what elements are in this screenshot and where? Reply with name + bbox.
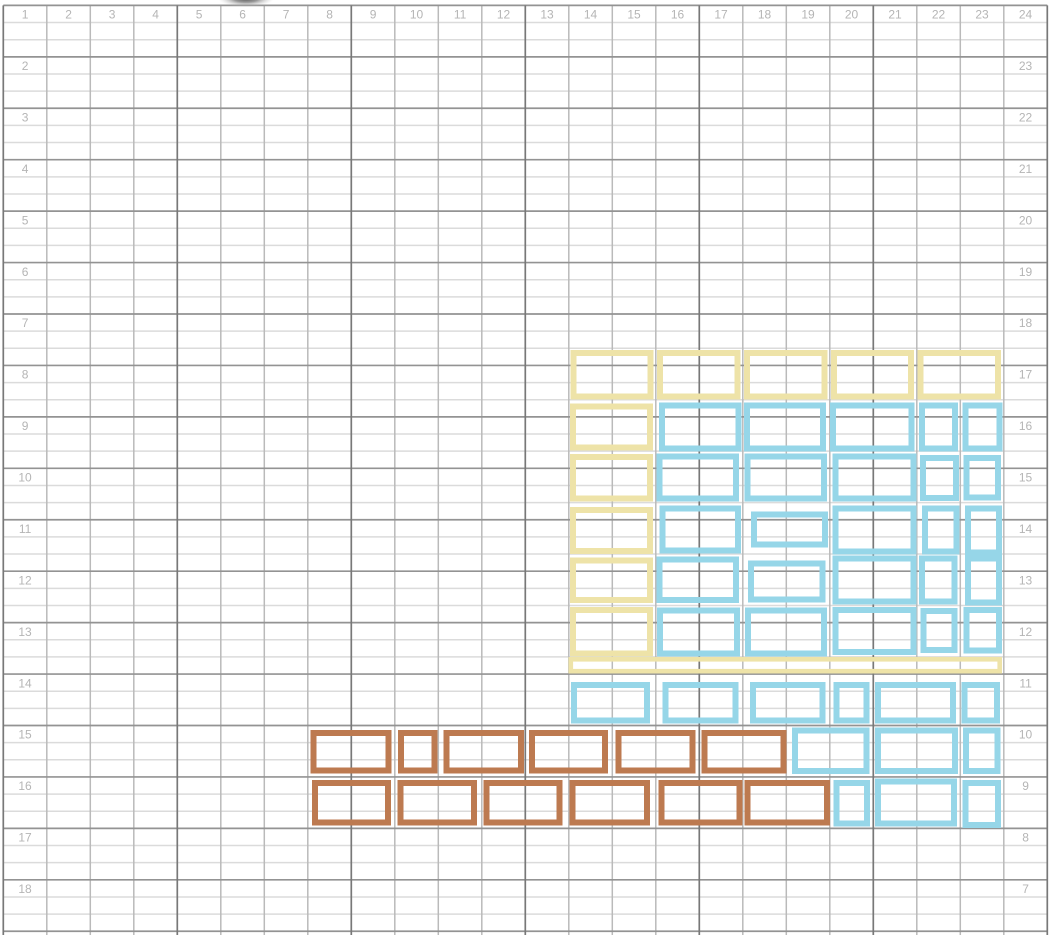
svg-text:2: 2	[22, 59, 29, 73]
svg-text:10: 10	[1019, 728, 1033, 742]
svg-text:13: 13	[18, 625, 32, 639]
svg-text:12: 12	[497, 8, 511, 22]
svg-text:13: 13	[1019, 573, 1033, 587]
svg-text:16: 16	[671, 8, 685, 22]
svg-text:15: 15	[627, 8, 641, 22]
svg-text:23: 23	[1019, 59, 1033, 73]
svg-text:14: 14	[1019, 522, 1033, 536]
svg-text:22: 22	[932, 8, 946, 22]
svg-text:8: 8	[1022, 831, 1029, 845]
svg-text:7: 7	[22, 316, 29, 330]
svg-text:22: 22	[1019, 110, 1033, 124]
svg-text:16: 16	[18, 779, 32, 793]
svg-text:4: 4	[22, 162, 29, 176]
svg-text:13: 13	[540, 8, 554, 22]
svg-text:17: 17	[714, 8, 728, 22]
svg-text:18: 18	[18, 882, 32, 896]
svg-text:23: 23	[975, 8, 989, 22]
svg-text:14: 14	[584, 8, 598, 22]
svg-text:20: 20	[845, 8, 859, 22]
svg-text:8: 8	[326, 8, 333, 22]
svg-text:5: 5	[196, 8, 203, 22]
svg-text:15: 15	[18, 728, 32, 742]
svg-text:5: 5	[22, 213, 29, 227]
svg-text:21: 21	[1019, 162, 1033, 176]
svg-text:17: 17	[1019, 368, 1033, 382]
svg-text:17: 17	[18, 831, 32, 845]
svg-text:19: 19	[1019, 265, 1033, 279]
svg-text:11: 11	[1019, 676, 1032, 690]
svg-text:1: 1	[22, 8, 29, 22]
svg-text:9: 9	[22, 419, 29, 433]
svg-text:3: 3	[109, 8, 116, 22]
svg-text:10: 10	[410, 8, 424, 22]
svg-text:6: 6	[22, 265, 29, 279]
svg-text:12: 12	[18, 573, 32, 587]
svg-text:14: 14	[18, 676, 32, 690]
svg-text:9: 9	[370, 8, 377, 22]
svg-text:20: 20	[1019, 213, 1033, 227]
svg-text:9: 9	[1022, 779, 1029, 793]
svg-text:15: 15	[1019, 471, 1033, 485]
svg-text:24: 24	[1019, 8, 1033, 22]
svg-text:16: 16	[1019, 419, 1033, 433]
svg-text:10: 10	[18, 471, 32, 485]
svg-text:7: 7	[1022, 882, 1029, 896]
svg-text:18: 18	[758, 8, 772, 22]
svg-text:3: 3	[22, 110, 29, 124]
svg-text:6: 6	[239, 8, 246, 22]
svg-text:11: 11	[19, 522, 32, 536]
svg-text:7: 7	[283, 8, 290, 22]
svg-text:2: 2	[65, 8, 72, 22]
svg-text:19: 19	[801, 8, 815, 22]
svg-text:18: 18	[1019, 316, 1033, 330]
svg-text:11: 11	[454, 8, 467, 22]
svg-text:12: 12	[1019, 625, 1033, 639]
svg-text:8: 8	[22, 368, 29, 382]
svg-text:4: 4	[152, 8, 159, 22]
svg-text:21: 21	[888, 8, 902, 22]
